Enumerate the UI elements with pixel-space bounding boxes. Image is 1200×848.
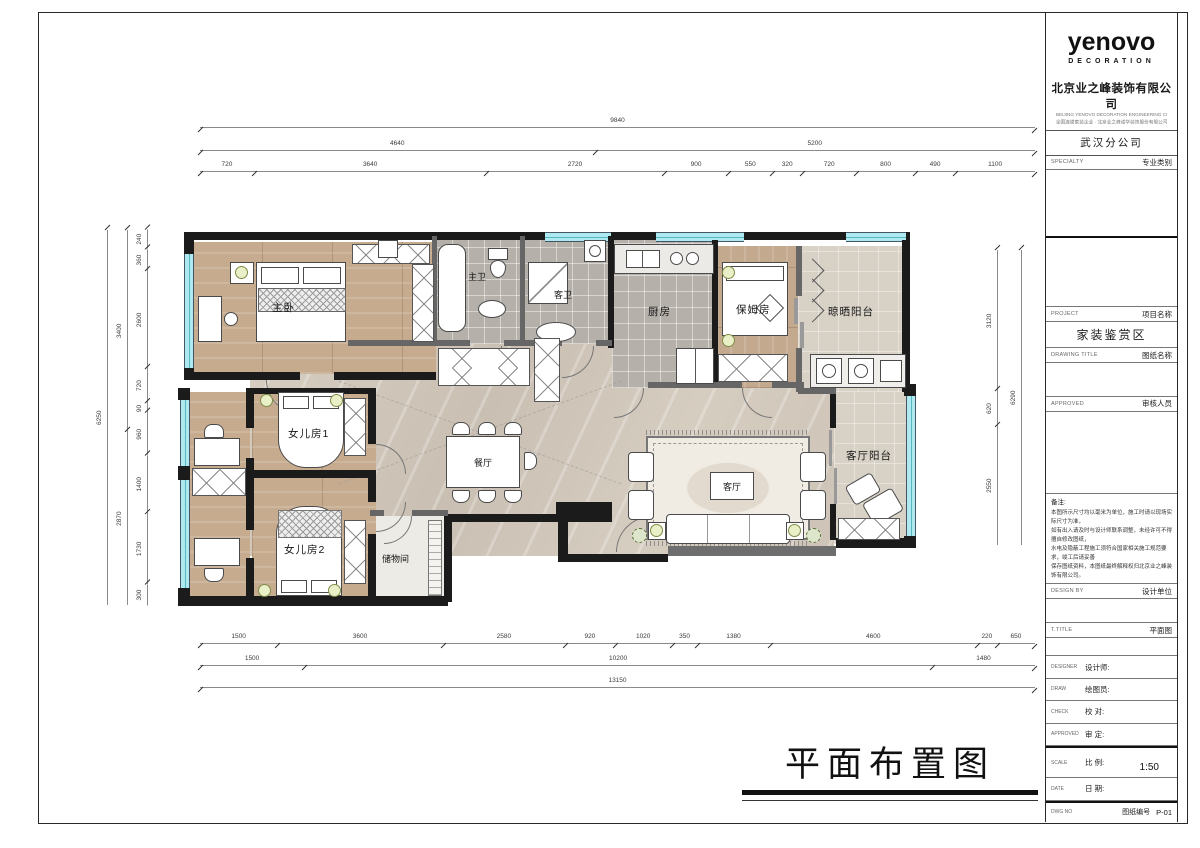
wall	[246, 458, 254, 530]
dining-chair	[478, 422, 496, 435]
dimension-segment: 2600	[136, 271, 148, 369]
wall	[246, 388, 254, 428]
wall	[830, 392, 836, 428]
wall	[348, 340, 470, 346]
wall	[368, 476, 376, 502]
laundry-sink	[880, 360, 902, 382]
plant-icon	[632, 528, 647, 543]
room-label-girl2: 女儿房2	[284, 542, 325, 557]
row-label-cn: 设计师:	[1085, 662, 1110, 673]
dimension-segment: 800	[856, 160, 915, 172]
sliding-door	[829, 430, 832, 466]
room-label-living-balcony: 客厅阳台	[846, 448, 892, 463]
dimension-segment: 1100	[955, 160, 1035, 172]
wall	[798, 388, 836, 394]
dimension-row-bottom-tier2: 1500 10200 1480	[200, 654, 1035, 666]
wall	[178, 596, 448, 606]
wall	[370, 510, 384, 516]
stove-burner	[686, 252, 699, 265]
notes-line: 如有出入请及时与设计师联系调整，未经许可不得擅自修改图纸，	[1051, 527, 1172, 545]
desk	[194, 438, 240, 466]
wall	[904, 536, 916, 548]
sig-row-draw: DRAW 绘图员:	[1046, 679, 1177, 701]
lamp-icon	[722, 334, 735, 347]
room-label-dry-balcony: 晾晒阳台	[828, 304, 874, 319]
window	[184, 254, 194, 368]
dimension-segment: 3600	[277, 632, 442, 644]
wall	[520, 236, 525, 344]
room-label-master: 主卧	[272, 300, 295, 315]
branch-name: 武汉分公司	[1046, 130, 1177, 156]
row-label-en: SCALE	[1051, 760, 1085, 766]
wall	[178, 388, 190, 400]
logo-subtitle: DECORATION	[1068, 58, 1155, 65]
wall	[178, 466, 190, 480]
row-label-en: SPECIALTY	[1051, 159, 1084, 165]
dimension-segment: 650	[997, 632, 1035, 644]
titleblock-row-ttitle: T.TITLE 平面图	[1046, 623, 1177, 638]
dimension-row-bottom-tier1: 1500 3600 2580 920 1020 350 1380 4600 22…	[200, 632, 1035, 644]
dimension-col-left-tier3: 240 360 2600 720 90 960 1400 1730 300	[136, 230, 148, 605]
coffee-table: 客厅	[710, 472, 754, 500]
dimension-row-top-tier3: 720 3640 2720 900 550 320 720 800 490 11…	[200, 160, 1035, 172]
feature-wall	[556, 502, 612, 522]
sliding-door	[800, 322, 804, 348]
armchair	[628, 452, 654, 482]
wall	[184, 232, 194, 254]
row-label-en: DRAWING TITLE	[1051, 352, 1098, 358]
window	[846, 232, 906, 242]
pillow	[261, 267, 299, 284]
sig-row-scale: SCALE 比 例: 1:50	[1046, 746, 1177, 778]
row-label-cn: 专业类别	[1142, 157, 1172, 168]
wall	[712, 382, 742, 388]
dimension-segment: 1730	[136, 514, 148, 584]
window	[656, 232, 744, 242]
washing-machine-drum	[589, 245, 601, 257]
toilet-tank	[488, 248, 508, 260]
wall	[412, 510, 448, 516]
row-label-cn: 图纸编号	[1122, 807, 1150, 817]
dimension-col-left-tier2: 3400 2870	[116, 230, 128, 605]
room-label-dining: 餐厅	[474, 456, 492, 469]
wall	[250, 470, 376, 478]
row-label-en: DRAW	[1051, 686, 1085, 692]
dimension-row-top-tier2: 4640 5200	[200, 139, 1035, 151]
bedside-lamp-icon	[235, 266, 248, 279]
row-label-en: DESIGN BY	[1051, 588, 1084, 594]
company-logo: yenovo DECORATION	[1046, 12, 1177, 80]
wardrobe	[412, 264, 434, 342]
row-label-en: DESIGNER	[1051, 664, 1085, 670]
title-underline-thick	[742, 790, 1038, 795]
dimension-segment: 920	[565, 632, 614, 644]
stamp-area	[1046, 170, 1177, 238]
sig-row-check: CHECK 校 对:	[1046, 701, 1177, 723]
dimension-segment: 2870	[116, 432, 128, 605]
row-label-cn: 设计单位	[1142, 586, 1172, 597]
dimension-segment: 490	[915, 160, 955, 172]
dimension-segment: 1020	[615, 632, 672, 644]
scale-value: 1:50	[1140, 762, 1159, 773]
wall	[444, 514, 452, 602]
dimension-segment: 9840	[200, 116, 1035, 128]
notes-line: 保存图纸资料，本图纸最终解释权归北京业之峰装饰有限公司。	[1051, 563, 1172, 581]
dimension-segment: 3640	[254, 160, 486, 172]
row-label-en: T.TITLE	[1051, 627, 1072, 633]
room-label-master-bath: 主卫	[468, 270, 486, 283]
window	[180, 400, 190, 466]
washing-machine-drum	[822, 364, 836, 378]
row-label-cn: 图纸名称	[1142, 350, 1172, 361]
dimension-segment: 4600	[770, 632, 977, 644]
armchair	[628, 490, 654, 520]
plant-icon	[806, 528, 821, 543]
dimension-col-left-total: 6250	[96, 230, 108, 605]
dimension-segment: 720	[136, 369, 148, 403]
dimension-segment: 2720	[486, 160, 663, 172]
dimension-segment: 900	[664, 160, 729, 172]
dimension-segment: 2580	[443, 632, 566, 644]
row-label-en: PROJECT	[1051, 311, 1079, 317]
notes-line: 水电及隐蔽工程施工须符合国家相关施工规范要求，竣工后请妥善	[1051, 545, 1172, 563]
window	[906, 396, 916, 536]
sofa	[666, 514, 790, 544]
notes-title: 备注:	[1051, 498, 1172, 507]
company-name-cn: 北京业之峰装饰有限公司	[1046, 80, 1177, 112]
chair	[204, 424, 224, 438]
row-label-cn: 绘图员:	[1085, 684, 1110, 695]
dimension-segment: 3120	[986, 250, 998, 391]
row-label-cn: 平面图	[1150, 625, 1173, 636]
dimension-segment: 550	[728, 160, 772, 172]
dimension-segment: 13150	[200, 676, 1035, 688]
wall	[558, 554, 668, 562]
dimension-segment: 6250	[96, 230, 108, 605]
blank-cell	[1046, 638, 1177, 657]
wall	[668, 546, 836, 556]
titleblock-row-design-by: DESIGN BY 设计单位	[1046, 584, 1177, 599]
dimension-segment: 720	[200, 160, 254, 172]
lamp-icon	[722, 266, 735, 279]
dining-table: 餐厅	[446, 436, 520, 488]
title-block: yenovo DECORATION 北京业之峰装饰有限公司 BEIJING YE…	[1045, 12, 1178, 822]
dimension-segment: 10200	[304, 654, 932, 666]
wall	[334, 372, 436, 380]
sig-row-approved: APPROVED 审 定:	[1046, 724, 1177, 746]
stove-burner	[670, 252, 683, 265]
dimension-segment: 620	[986, 391, 998, 427]
room-label-storage: 储物间	[382, 552, 409, 565]
chair	[204, 568, 224, 582]
titleblock-row-project: PROJECT 项目名称	[1046, 307, 1177, 322]
wardrobe	[344, 520, 366, 584]
row-label-en: DWG NO	[1051, 809, 1122, 815]
blank-cell	[1046, 363, 1177, 397]
wall	[368, 534, 376, 598]
notes-block: 备注: 本图所示尺寸均以毫米为单位，施工时请以现场实际尺寸为准， 如有出入请及时…	[1046, 494, 1177, 584]
dwg-number-row: DWG NO 图纸编号 P-01	[1046, 801, 1177, 822]
room-label-girl1: 女儿房1	[288, 426, 329, 441]
lamp-icon	[260, 394, 273, 407]
bed-blanket	[278, 510, 342, 538]
sliding-door	[834, 468, 837, 504]
blank-cell	[1046, 412, 1177, 495]
dimension-segment: 350	[672, 632, 698, 644]
wall	[830, 504, 836, 540]
dimension-segment: 1480	[932, 654, 1035, 666]
wall	[444, 514, 566, 522]
dimension-segment: 320	[772, 160, 802, 172]
dining-chair	[504, 422, 522, 435]
dresser	[198, 296, 222, 342]
row-label-en: CHECK	[1051, 709, 1085, 715]
company-name-en: BEIJING YENOVO DECORATION ENGINEERING CO…	[1056, 112, 1167, 117]
room-label-guest-bath: 客卫	[554, 288, 572, 301]
dimension-col-right-tier2: 3120 620 2550	[986, 250, 998, 545]
dimension-col-right-total: 6290	[1010, 250, 1022, 545]
row-label-cn: 比 例:	[1085, 757, 1104, 768]
lamp-icon	[788, 524, 801, 537]
fridge-divider	[695, 348, 696, 384]
stool	[224, 312, 238, 326]
wall	[368, 388, 376, 444]
title-underline-thin	[742, 800, 1038, 801]
dimension-segment: 960	[136, 413, 148, 455]
lamp-icon	[258, 584, 271, 597]
balcony-cabinet	[838, 518, 900, 540]
row-label-cn: 审 定:	[1085, 729, 1104, 740]
wall	[246, 558, 254, 598]
sink-divider	[642, 250, 643, 268]
row-label-cn: 项目名称	[1142, 309, 1172, 320]
drawing-title: 平面布置图	[742, 736, 1038, 787]
company-line2: 全国连锁家装企业 · 北京业之峰诺华装饰股份有限公司	[1056, 118, 1167, 125]
sig-row-date: DATE 日 期:	[1046, 778, 1177, 800]
project-name-value: 家装鉴赏区	[1046, 322, 1177, 348]
dwg-number-value: P-01	[1156, 808, 1172, 817]
armchair	[800, 490, 826, 520]
dimension-row-bottom-total: 13150	[200, 676, 1035, 688]
sliding-door	[794, 298, 798, 324]
wardrobe	[344, 398, 366, 456]
blank-cell	[1046, 599, 1177, 623]
sig-row-designer: DESIGNER 设计师:	[1046, 656, 1177, 678]
desk	[194, 538, 240, 566]
dimension-segment: 1500	[200, 654, 304, 666]
row-label-cn: 审核人员	[1142, 398, 1172, 409]
dimension-segment: 1500	[200, 632, 277, 644]
row-label-en: DATE	[1051, 786, 1085, 792]
armchair	[800, 452, 826, 482]
row-label-cn: 日 期:	[1085, 783, 1104, 794]
pillow	[281, 580, 307, 593]
sink	[478, 300, 506, 318]
row-label-en: APPROVED	[1051, 731, 1085, 737]
bathtub	[438, 244, 466, 332]
dimension-segment: 6290	[1010, 250, 1022, 545]
dimension-row-top-total: 9840	[200, 116, 1035, 128]
row-label-en: APPROVED	[1051, 401, 1084, 407]
blank-cell	[1046, 238, 1177, 307]
room-label-nanny: 保姆房	[736, 302, 771, 317]
titleblock-row-drawing: DRAWING TITLE 图纸名称	[1046, 348, 1177, 363]
hall-cabinet	[438, 348, 530, 386]
lamp-icon	[650, 524, 663, 537]
washing-machine-drum	[854, 364, 868, 378]
lamp-icon	[330, 394, 343, 407]
dimension-segment: 1380	[697, 632, 769, 644]
dining-chair	[452, 422, 470, 435]
dimension-segment: 3400	[116, 230, 128, 432]
floorplan-sheet: 客厅 餐厅 主卧 主卫 客卫 厨房 保姆房 晾晒阳台 客厅阳台 女儿房1 女儿房…	[0, 0, 1200, 848]
dimension-segment: 2550	[986, 427, 998, 545]
storage-shelf	[428, 520, 442, 596]
cabinet	[192, 468, 246, 496]
row-label-cn: 校 对:	[1085, 706, 1104, 717]
room-label-living: 客厅	[723, 480, 741, 493]
wall	[184, 372, 300, 380]
lamp-icon	[328, 584, 341, 597]
titleblock-row-approved-by: APPROVED 审核人员	[1046, 397, 1177, 412]
dimension-segment: 220	[977, 632, 997, 644]
cabinet	[378, 240, 398, 258]
dimension-segment: 5200	[595, 139, 1035, 151]
rug-fringe	[646, 430, 810, 435]
pillow	[303, 267, 341, 284]
hall-cabinet	[534, 338, 560, 402]
wardrobe	[718, 354, 788, 382]
dimension-segment: 1400	[136, 455, 148, 514]
kitchen-sink	[626, 250, 660, 268]
logo-wordmark: yenovo	[1068, 28, 1156, 57]
window	[180, 480, 190, 588]
dimension-segment: 720	[802, 160, 856, 172]
room-label-kitchen: 厨房	[648, 304, 671, 319]
dimension-segment: 4640	[200, 139, 595, 151]
dimension-segment: 300	[136, 585, 148, 606]
wall	[596, 340, 612, 346]
titleblock-row-specialty: SPECIALTY 专业类别	[1046, 156, 1177, 171]
notes-line: 本图所示尺寸均以毫米为单位，施工时请以现场实际尺寸为准，	[1051, 509, 1172, 527]
pillow	[283, 396, 309, 409]
